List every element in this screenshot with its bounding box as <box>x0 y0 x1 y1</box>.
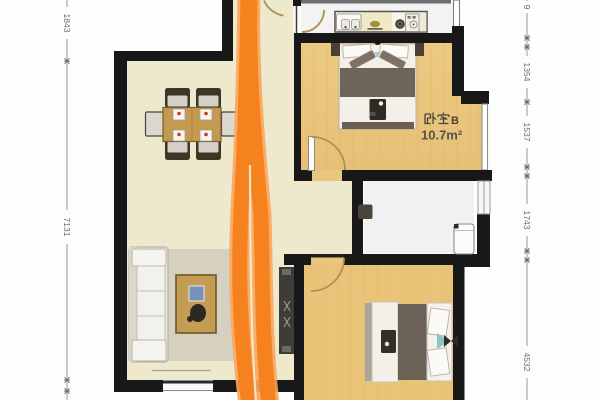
svg-text:10.7m²: 10.7m² <box>421 128 463 143</box>
svg-text:7131: 7131 <box>62 218 72 237</box>
svg-text:1354: 1354 <box>522 63 532 82</box>
svg-text:1537: 1537 <box>522 123 532 142</box>
svg-text:4532: 4532 <box>522 353 532 372</box>
svg-text:1843: 1843 <box>62 14 72 33</box>
svg-text:1743: 1743 <box>522 211 532 230</box>
svg-text:B: B <box>451 115 459 127</box>
svg-text:9: 9 <box>522 5 532 10</box>
